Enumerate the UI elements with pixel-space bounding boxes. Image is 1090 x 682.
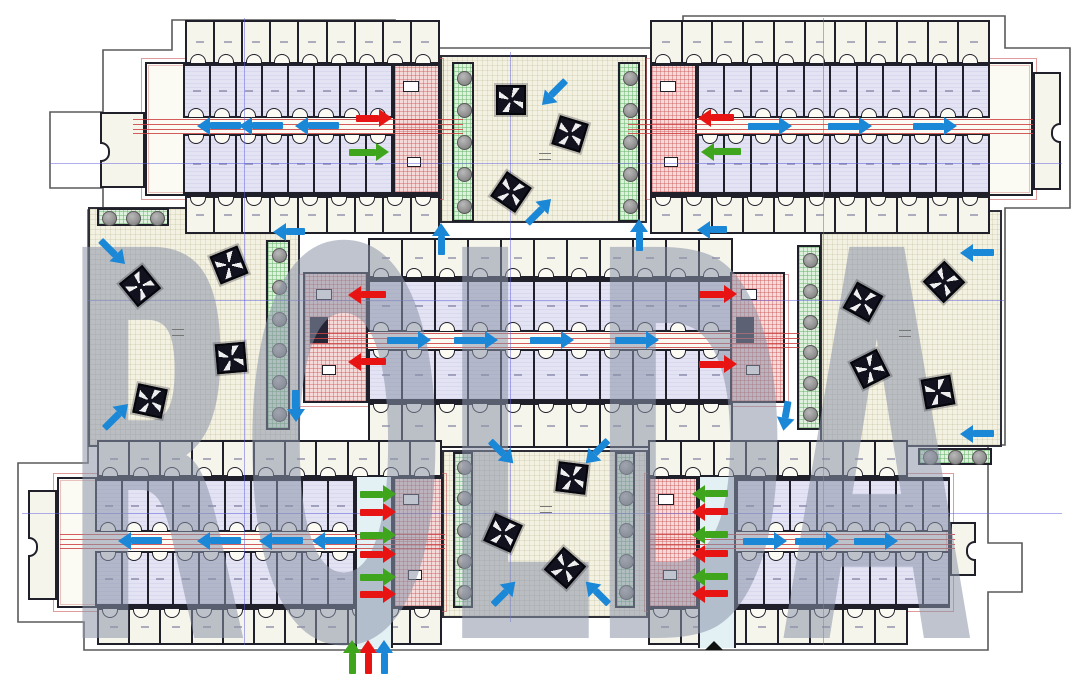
tree-icon [972,450,987,465]
airflow-arrow-blue [295,117,339,135]
arrow-head [944,117,957,135]
kennel-cell [683,22,714,62]
arrow-head [295,117,308,135]
airflow-arrow-blue [259,532,303,550]
arrow-head [375,640,393,653]
door-arc [834,108,850,117]
wing-endcap [28,490,57,600]
arrow-head [960,244,973,262]
door-arc [962,197,978,206]
kennel-cell [858,66,884,116]
airflow-arrow-blue [118,532,162,550]
arrow-head [359,640,377,653]
arrow-shaft [131,538,162,545]
ventilation-fan-icon [555,461,588,494]
door-arc [962,54,978,63]
scale-mark [172,329,184,336]
arrow-head [630,219,648,232]
door-arc [887,108,903,117]
arrow-shaft [743,538,774,545]
arrow-head [646,331,659,349]
arrow-head [383,585,396,603]
arrow-shaft [636,232,643,251]
airflow-arrow-green [343,640,361,674]
kennel-cell [356,22,384,62]
kennel-cell [964,66,988,116]
arrow-shaft [714,149,741,156]
airflow-arrow-blue [454,331,498,349]
door-arc [190,54,206,63]
airflow-arrow-blue [960,244,994,262]
door-arc [188,108,204,117]
airflow-arrow-red [360,545,396,563]
fixture [403,81,419,92]
door-arc [967,108,983,117]
arrow-head [774,532,787,550]
arrow-shaft [828,123,859,130]
arrow-head [287,409,305,422]
tree-icon [457,103,472,118]
arrow-shaft [361,359,386,366]
airflow-arrow-blue [387,331,431,349]
arrow-head [432,223,450,236]
arrow-shaft [286,229,305,236]
airflow-arrow-blue [273,223,305,241]
kennel-row [650,20,990,64]
arrow-shaft [210,538,241,545]
door-arc [778,54,794,63]
arrow-shaft [210,123,241,130]
kennel-cell [215,22,243,62]
arrow-head [885,532,898,550]
kennel-cell [299,22,327,62]
airflow-arrow-red [692,503,728,521]
airflow-arrow-blue [854,532,898,550]
ventilation-fan-icon [215,342,248,375]
arrow-head [383,568,396,586]
kennel-cell [744,22,775,62]
kennel-cell [884,66,910,116]
door-arc [214,108,230,117]
airflow-arrow-blue [960,425,994,443]
airflow-arrow-red [348,353,386,371]
arrow-head [697,221,710,239]
arrow-head [383,503,396,521]
arrow-head [485,331,498,349]
arrow-head [197,117,210,135]
arrow-head [826,532,839,550]
door-arc [387,54,403,63]
arrow-head [779,117,792,135]
door-arc [331,54,347,63]
arrow-head [312,532,325,550]
kennel-cell [652,22,683,62]
kennel-cell [898,22,929,62]
door-arc [274,54,290,63]
kennel-row [697,64,990,118]
arrow-head [692,503,705,521]
arrow-head [692,485,705,503]
kennel-cell [831,66,857,116]
kennel-cell [211,66,237,116]
kennel-cell [836,22,867,62]
arrow-shaft [705,491,728,498]
arrow-shaft [705,509,728,516]
door-arc [932,54,948,63]
arrow-shaft [360,574,383,581]
airflow-arrow-blue [743,532,787,550]
airflow-arrow-blue [748,117,792,135]
tree-icon [623,103,638,118]
arrow-shaft [360,509,383,516]
arrow-shaft [854,538,885,545]
airflow-arrow-blue [828,117,872,135]
arrow-head [383,485,396,503]
arrow-shaft [293,390,300,409]
arrow-shaft [360,491,383,498]
airflow-arrow-green [360,526,396,544]
arrow-head [701,143,714,161]
arrow-head [859,117,872,135]
door-arc [266,108,282,117]
arrow-head [348,286,361,304]
arrow-shaft [699,361,724,368]
ventilation-fan-icon [132,383,168,419]
kennel-cell [187,22,215,62]
kennel-cell [185,66,211,116]
arrow-head [383,526,396,544]
kennel-cell [806,22,837,62]
ventilation-fan-icon [921,375,956,410]
airflow-arrow-red [692,545,728,563]
kennel-cell [929,22,960,62]
door-arc [655,54,671,63]
arrow-head [692,585,705,603]
kennel-cell [713,22,744,62]
airflow-arrow-green [692,485,728,503]
door-arc [716,54,732,63]
airflow-arrow-red [360,503,396,521]
kennel-cell [775,22,806,62]
airflow-arrow-blue [630,219,648,251]
arrow-shaft [913,123,944,130]
scale-mark [540,506,552,513]
arrow-shaft [748,123,779,130]
arrow-head [692,545,705,563]
airflow-arrow-red [698,109,734,127]
arrow-head [724,285,737,303]
arrow-shaft [272,538,303,545]
arrow-head [383,545,396,563]
airflow-arrow-red [692,585,728,603]
kennel-cell [315,66,341,116]
airflow-arrow-red [360,585,396,603]
door-arc [246,54,262,63]
kennel-cell [805,66,831,116]
arrow-shaft [782,401,792,419]
kennel-cell [271,22,299,62]
airflow-arrow-blue [432,223,450,255]
airflow-arrow-red [359,640,377,674]
arrow-shaft [711,115,734,122]
arrow-head [348,353,361,371]
airflow-arrow-red [356,109,392,127]
entrance-marker-icon [705,641,723,650]
door-arc [318,108,334,117]
door-arc [755,108,771,117]
kennel-cell [752,66,778,116]
airflow-arrow-blue [795,532,839,550]
door-arc [218,54,234,63]
door-arc [901,54,917,63]
scale-mark [539,153,551,160]
door-arc [839,54,855,63]
airflow-arrow-green [692,568,728,586]
arrow-shaft [705,574,728,581]
arrow-shaft [325,538,356,545]
door-arc [292,108,308,117]
floor-plan-canvas: ROLDA [0,0,1090,682]
arrow-shaft [308,123,339,130]
airflow-arrow-blue [697,221,727,239]
arrow-shaft [705,551,728,558]
kennel-cell [937,66,963,116]
airflow-arrow-red [699,285,737,303]
fixture [660,81,676,92]
airflow-arrow-green [349,143,389,161]
airflow-arrow-blue [615,331,659,349]
arrow-shaft [360,551,383,558]
arrow-head [561,331,574,349]
airflow-arrow-red [699,355,737,373]
airflow-arrow-blue [287,390,305,422]
arrow-shaft [615,337,646,344]
arrow-head [960,425,973,443]
kennel-cell [412,22,438,62]
arrow-head [197,532,210,550]
kennel-cell [778,66,804,116]
arrow-shaft [349,149,376,156]
door-arc [861,108,877,117]
arrow-shaft [705,591,728,598]
arrow-shaft [454,337,485,344]
tree-icon [457,71,472,86]
arrow-shaft [530,337,561,344]
arrow-head [724,355,737,373]
door-arc [240,108,256,117]
kennel-cell [384,22,412,62]
arrow-head [692,568,705,586]
door-arc [781,108,797,117]
kennel-cell [237,66,263,116]
kennel-cell [964,136,988,192]
door-arc [415,54,431,63]
arrow-shaft [387,337,418,344]
arrow-head [376,143,389,161]
arrow-head [698,109,711,127]
door-arc [967,135,983,144]
arrow-head [692,526,705,544]
kennel-cell [289,66,315,116]
kennel-cell [328,22,356,62]
arrow-head [273,223,286,241]
door-arc [686,54,702,63]
arrow-shaft [705,532,728,539]
door-arc [940,108,956,117]
arrow-shaft [699,291,724,298]
arrow-shaft [592,588,610,606]
kennel-cell [959,198,988,232]
arrow-shaft [360,591,383,598]
arrow-shaft [365,653,372,674]
scale-mark [899,330,911,337]
arrow-head [418,331,431,349]
arrow-shaft [438,236,445,255]
arrow-head [379,109,392,127]
door-arc [302,54,318,63]
arrow-shaft [360,532,383,539]
door-arc [747,54,763,63]
airflow-arrow-blue [197,117,241,135]
airflow-arrow-green [360,568,396,586]
arrow-shaft [361,292,386,299]
door-arc [870,54,886,63]
kennel-cell [867,22,898,62]
airflow-arrow-red [348,286,386,304]
door-arc [808,108,824,117]
airflow-arrow-green [701,143,741,161]
airflow-arrow-blue [530,331,574,349]
arrow-shaft [973,250,994,257]
airflow-arrow-blue [312,532,356,550]
arrow-head [343,640,361,653]
kennel-cell [243,22,271,62]
arrow-shaft [795,538,826,545]
tree-icon [623,71,638,86]
arrow-shaft [252,123,283,130]
arrow-shaft [381,653,388,674]
airflow-arrow-green [692,526,728,544]
arrow-shaft [710,227,727,234]
arrow-shaft [349,653,356,674]
kennel-cell [959,22,988,62]
kennel-cell [911,66,937,116]
airflow-arrow-blue [913,117,957,135]
airflow-arrow-blue [375,640,393,674]
arrow-head [239,117,252,135]
wing-endcap [1033,72,1061,190]
arrow-shaft [973,431,994,438]
kennel-cell [263,66,289,116]
airflow-arrow-green [360,485,396,503]
door-arc [914,108,930,117]
airflow-arrow-blue [239,117,283,135]
arrow-head [118,532,131,550]
arrow-shaft [356,115,379,122]
door-arc [359,54,375,63]
kennel-row [185,20,440,64]
ventilation-fan-icon [496,85,526,115]
arrow-head [259,532,272,550]
airflow-arrow-blue [197,532,241,550]
